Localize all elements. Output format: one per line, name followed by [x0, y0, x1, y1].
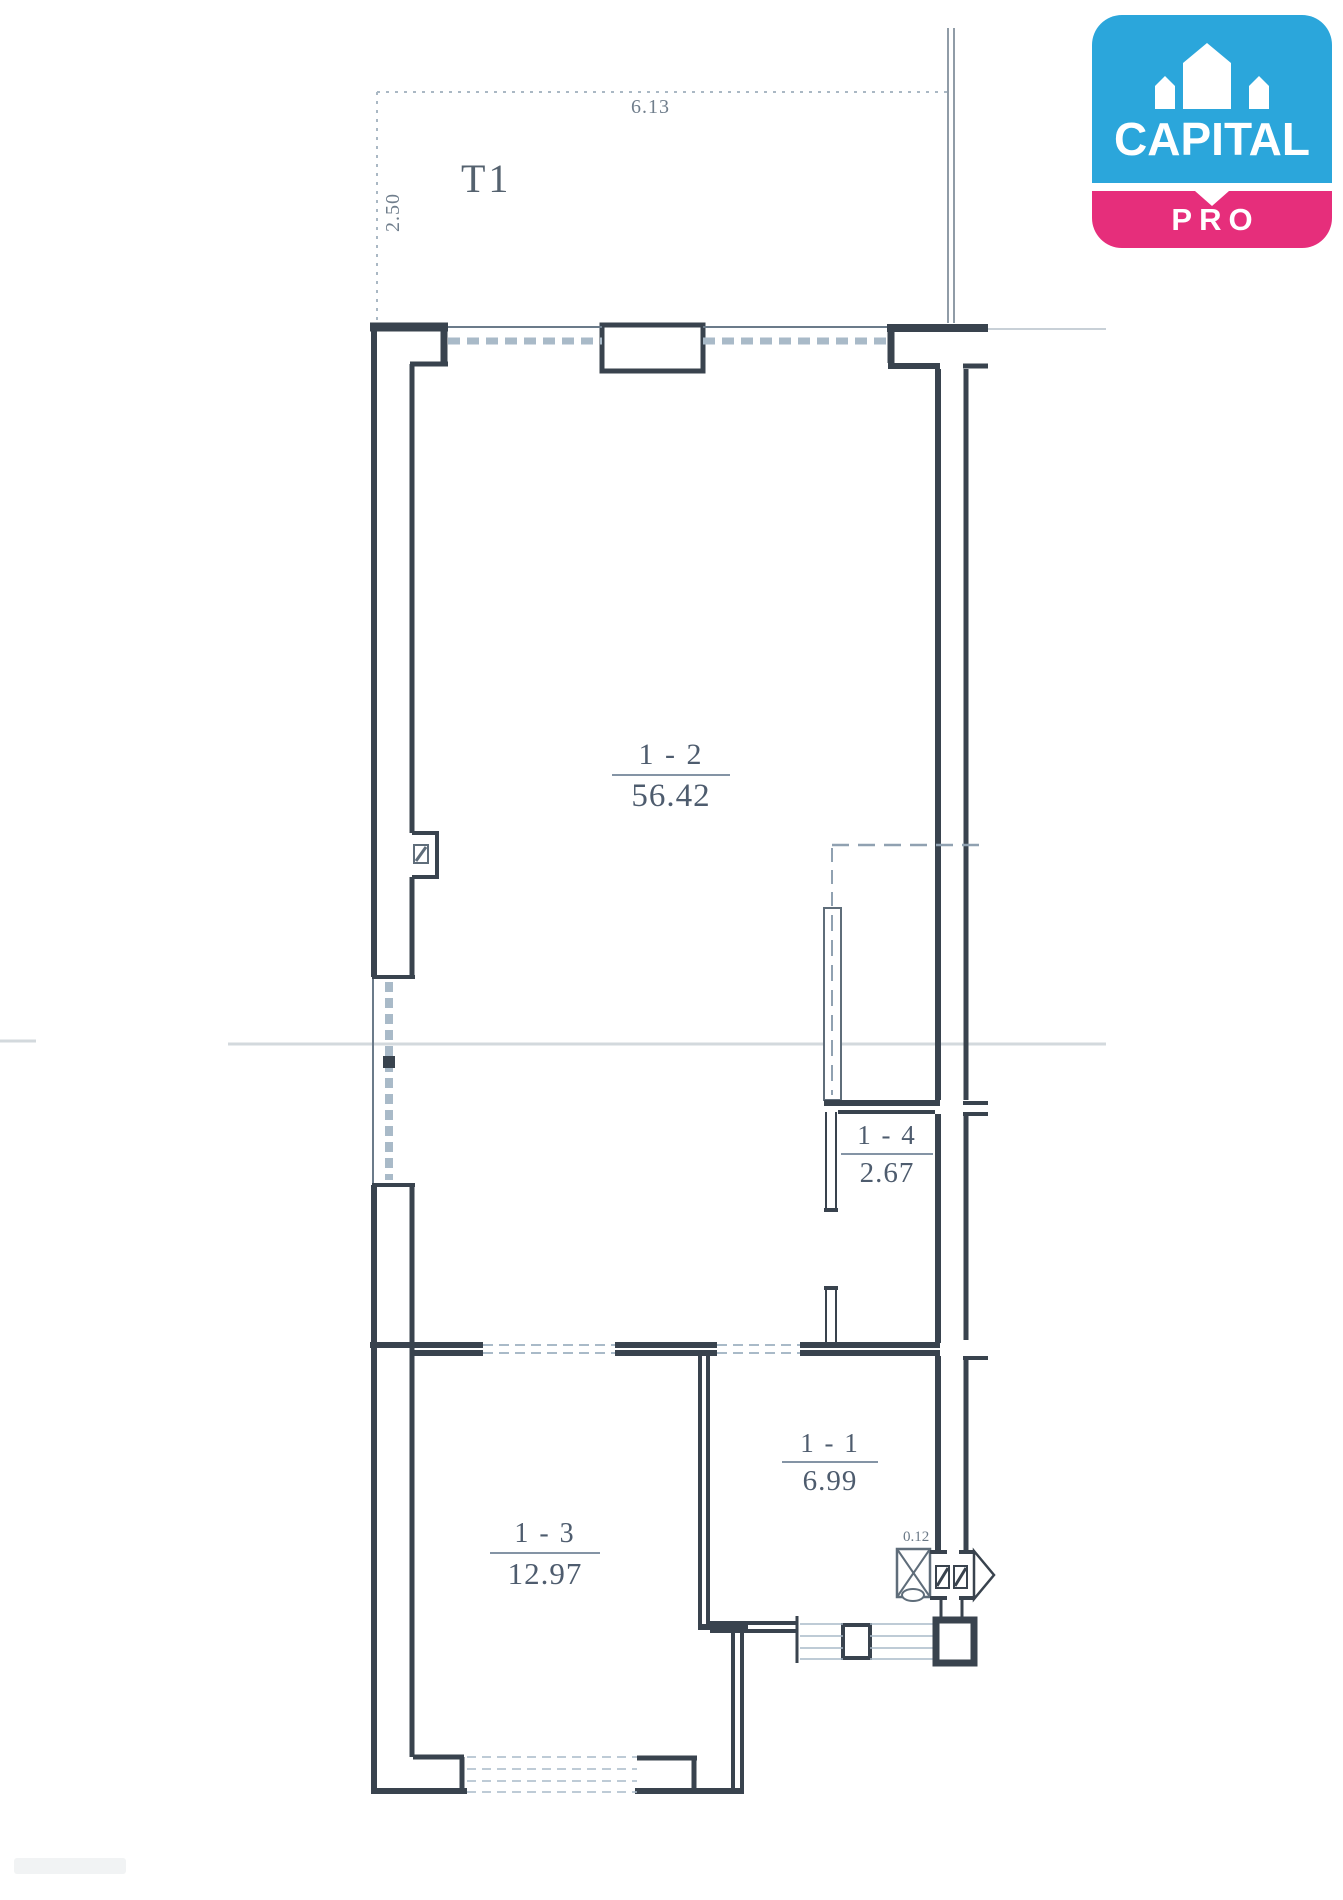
castle-icon	[1092, 31, 1332, 109]
capital-pro-logo: CAPITAL PRO	[1092, 15, 1332, 248]
logo-tier-text: PRO	[1171, 202, 1259, 238]
terrace-depth-dimension: 2.50	[382, 193, 405, 232]
scan-smudge	[14, 1858, 126, 1874]
floor-plan-drawing	[0, 0, 1343, 1900]
room-name: 1 - 2	[612, 738, 730, 776]
room-area: 56.42	[631, 776, 710, 815]
left-wall-niche	[412, 833, 437, 877]
terrace-label: T1	[461, 155, 511, 202]
room-label-1-3: 1 - 3 12.97	[490, 1518, 600, 1592]
scanned-floor-plan-page: T1 6.13 2.50 1 - 2 56.42 1 - 4 2.67 1 - …	[0, 0, 1343, 1900]
room-name: 1 - 1	[782, 1428, 878, 1463]
room-area: 12.97	[508, 1554, 583, 1592]
room-label-1-1: 1 - 1 6.99	[782, 1428, 878, 1498]
logo-blue-panel: CAPITAL	[1092, 15, 1332, 183]
light-partition	[824, 908, 841, 1100]
left-wall-window	[383, 982, 395, 1180]
shaft-dimension: 0.12	[903, 1529, 929, 1546]
neighbor-wall-line	[948, 28, 954, 323]
room-area: 6.99	[803, 1463, 858, 1498]
porch-steps	[467, 1757, 637, 1792]
logo-brand-text: CAPITAL	[1114, 115, 1310, 163]
vent-shaft-symbol	[897, 1549, 930, 1601]
middle-dividing-wall	[370, 1345, 940, 1353]
terrace-width-dimension: 6.13	[631, 96, 670, 119]
entrance-pillar	[936, 1620, 974, 1663]
room-name: 1 - 3	[490, 1518, 600, 1554]
terrace-outline	[377, 92, 947, 323]
logo-pink-panel: PRO	[1092, 191, 1332, 248]
top-exterior-wall	[370, 325, 988, 371]
room-label-1-4: 1 - 4 2.67	[841, 1120, 933, 1190]
right-shaft-walls	[938, 369, 988, 1552]
room-area: 2.67	[860, 1155, 915, 1190]
room-name: 1 - 4	[841, 1120, 933, 1155]
logo-notch	[1195, 191, 1229, 206]
entrance-arrow-icon	[974, 1551, 994, 1599]
room-1-3-bottom-wall	[635, 1758, 744, 1791]
entrance-door-jambs	[930, 1552, 975, 1620]
divider-1-3-1-1	[700, 1355, 748, 1791]
dashed-construction-lines	[832, 845, 985, 906]
room-label-1-2: 1 - 2 56.42	[612, 738, 730, 815]
